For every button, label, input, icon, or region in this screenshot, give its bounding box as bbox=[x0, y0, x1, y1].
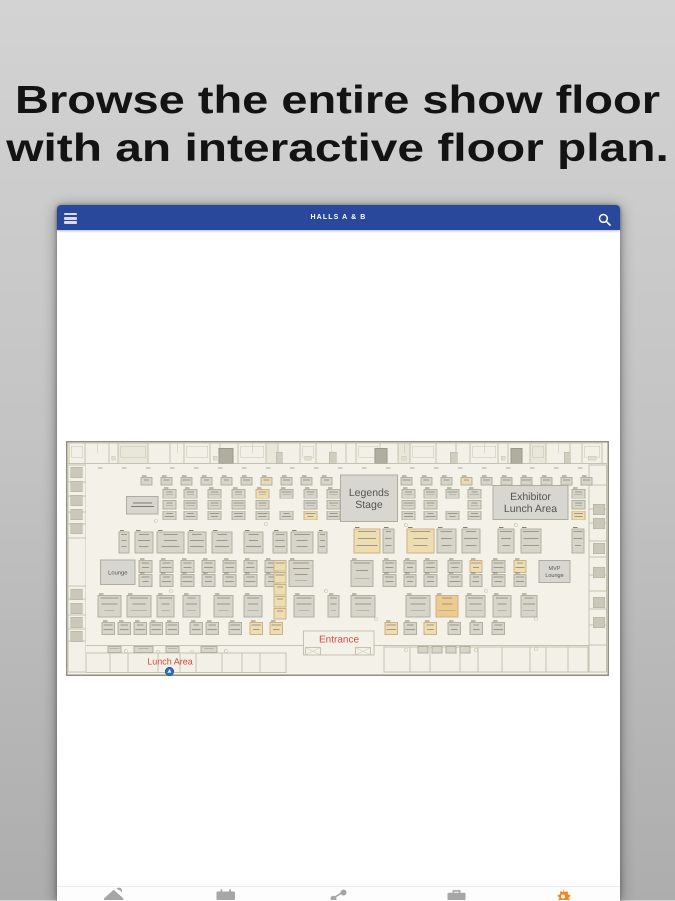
svg-text:Lounge: Lounge bbox=[545, 573, 563, 579]
svg-text:Stage: Stage bbox=[355, 499, 383, 511]
svg-text:Lunch Area: Lunch Area bbox=[504, 503, 557, 515]
svg-text:Exhibitor: Exhibitor bbox=[510, 491, 551, 503]
svg-text:Lounge: Lounge bbox=[108, 570, 127, 576]
svg-text:Legends: Legends bbox=[349, 487, 389, 499]
svg-text:Entrance: Entrance bbox=[319, 635, 359, 646]
svg-text:MVP: MVP bbox=[549, 566, 561, 572]
svg-text:Lunch Area: Lunch Area bbox=[147, 657, 193, 667]
